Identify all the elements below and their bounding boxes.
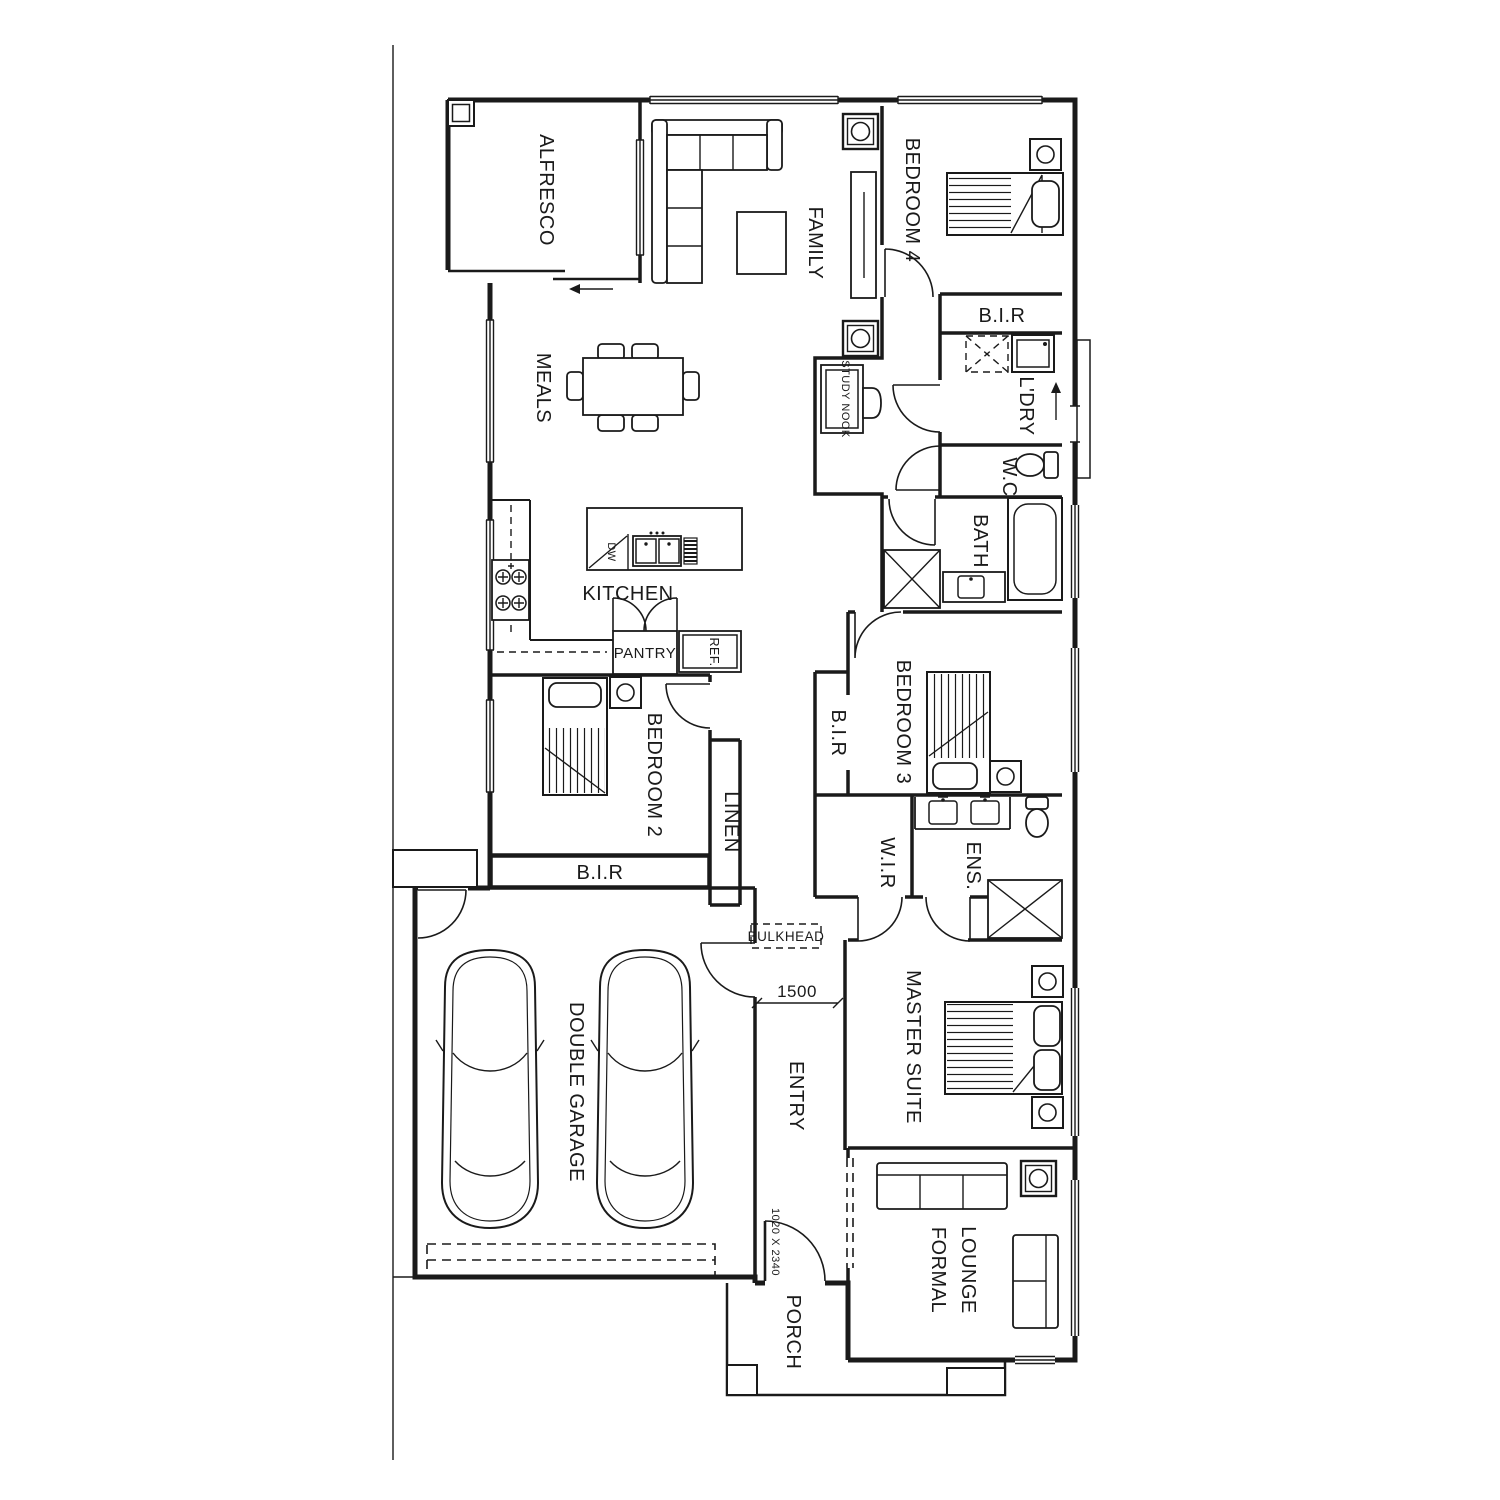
garage-side-door [418, 890, 466, 938]
label-meals: MEALS [532, 353, 554, 423]
sofa-icon [1013, 1235, 1058, 1328]
label-garage: DOUBLE GARAGE [565, 1002, 587, 1182]
label-wc: W.C [998, 457, 1020, 496]
bedside-table-icon [610, 677, 641, 708]
label-bath: BATH [969, 514, 991, 568]
bedside-table-icon [1030, 139, 1061, 170]
label-porch: PORCH [782, 1295, 804, 1370]
bedroom3-door [855, 612, 901, 658]
garage-entry-door [701, 943, 755, 997]
floor-plan-drawing: 1500 ALFRESCO FAMILY BEDROOM 4 B.I.R L'D… [0, 0, 1500, 1500]
alfresco-sliding-door [448, 271, 640, 279]
bed-icon [927, 672, 990, 793]
label-formal: FORMAL [927, 1227, 949, 1313]
laundry-door [893, 385, 940, 432]
site-boundary [393, 45, 415, 1460]
cooktop-icon [492, 560, 529, 620]
coffee-table-icon [737, 212, 786, 274]
toilet-icon [1016, 452, 1058, 478]
bath-door [889, 499, 935, 545]
car-icon [436, 950, 544, 1228]
wc-door [896, 446, 940, 490]
label-front-door-size: 1020 X 2340 [769, 1208, 781, 1276]
label-dw: DW [605, 542, 617, 561]
pier-icon [1021, 1161, 1056, 1196]
label-bedroom4: BEDROOM 4 [901, 138, 923, 263]
label-bedroom2: BEDROOM 2 [643, 713, 665, 838]
sofa-icon [877, 1163, 1007, 1209]
dining-table-icon [567, 344, 699, 431]
car-icon [591, 950, 699, 1228]
floor-plan-page: 1500 ALFRESCO FAMILY BEDROOM 4 B.I.R L'D… [0, 0, 1500, 1500]
washer-space-icon [966, 336, 1008, 372]
label-lounge: LOUNGE [957, 1226, 979, 1313]
label-bir-bed3: B.I.R [827, 710, 849, 757]
label-kitchen: KITCHEN [582, 583, 673, 605]
vanity-icon [943, 572, 1005, 602]
label-bir-bed4: B.I.R [979, 305, 1026, 327]
shower-icon [988, 880, 1062, 938]
label-ref: REF. [707, 637, 721, 666]
label-ens: ENS. [962, 842, 984, 891]
pier-icon [843, 114, 878, 149]
label-pantry: PANTRY [614, 645, 676, 662]
label-study-nook: STUDY NOOK [839, 360, 851, 438]
wir-door [858, 897, 902, 941]
bedroom2-door [666, 684, 710, 728]
label-bulkhead: BULKHEAD [748, 929, 825, 944]
bed-icon [947, 173, 1063, 235]
bed-icon [945, 1002, 1062, 1094]
label-bedroom3: BEDROOM 3 [892, 660, 914, 785]
shower-icon [884, 550, 940, 608]
label-wir: W.I.R [876, 837, 898, 888]
sink-icon [633, 532, 681, 567]
dim-1500: 1500 [777, 982, 817, 1001]
label-master-suite: MASTER SUITE [902, 970, 924, 1124]
label-family: FAMILY [804, 207, 826, 280]
bedside-table-icon [1032, 966, 1063, 997]
tv-unit-icon [851, 172, 876, 298]
toilet-icon [1026, 797, 1048, 837]
porch-pier [727, 1365, 757, 1395]
drainer-icon [684, 538, 697, 564]
entry-lounge-opening [847, 1158, 853, 1268]
label-entry: ENTRY [785, 1061, 807, 1131]
label-alfresco: ALFRESCO [535, 134, 557, 246]
garage-side-landing [393, 850, 477, 887]
bedside-table-icon [990, 761, 1021, 792]
label-ldry: L'DRY [1015, 376, 1037, 435]
label-linen: LINEN [720, 791, 742, 852]
bedside-table-icon [1032, 1097, 1063, 1128]
label-bir-bed2: B.I.R [577, 862, 624, 884]
double-vanity-icon [915, 797, 1010, 829]
porch-step [947, 1368, 1005, 1395]
bathtub-icon [1008, 498, 1062, 600]
laundry-arrow-icon [1051, 382, 1061, 420]
pier-icon [843, 321, 878, 356]
slider-arrow-icon [569, 284, 613, 294]
dimension-entry-width: 1500 [752, 982, 843, 1008]
furniture [436, 100, 1063, 1328]
bed-icon [543, 678, 607, 795]
laundry-tub-icon [1012, 335, 1054, 372]
ens-door [926, 897, 970, 941]
chair-icon [863, 388, 881, 418]
